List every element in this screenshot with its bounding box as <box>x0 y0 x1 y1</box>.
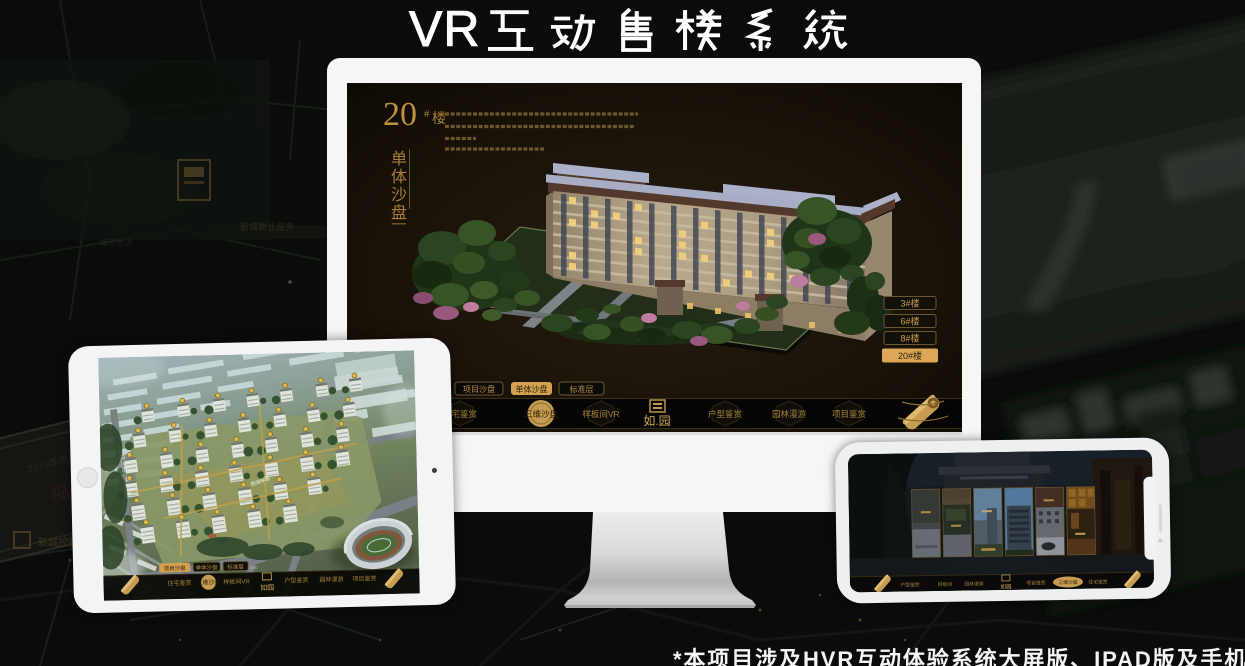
svg-text:沙: 沙 <box>391 187 407 204</box>
svg-text:20#楼: 20#楼 <box>898 350 922 361</box>
svg-text:体: 体 <box>391 168 407 186</box>
svg-text:3#楼: 3#楼 <box>900 298 919 309</box>
svg-text:新城物业服务: 新城物业服务 <box>240 221 294 232</box>
svg-text:楼: 楼 <box>432 110 446 126</box>
svg-text:单: 单 <box>391 150 407 168</box>
svg-text:标准层: 标准层 <box>570 384 594 394</box>
svg-text:户型鉴赏: 户型鉴赏 <box>708 409 742 419</box>
svg-text:如园: 如园 <box>260 583 274 592</box>
svg-text:VR: VR <box>409 5 480 55</box>
svg-text:6#楼: 6#楼 <box>900 316 919 327</box>
svg-text:三维沙盘: 三维沙盘 <box>524 409 559 419</box>
svg-text:盘: 盘 <box>391 203 407 222</box>
svg-text:项目鉴赏: 项目鉴赏 <box>832 409 866 419</box>
svg-text:#: # <box>424 108 430 120</box>
svg-text:如.园: 如.园 <box>643 413 670 428</box>
svg-text:项目沙盘: 项目沙盘 <box>463 384 495 394</box>
svg-text:20: 20 <box>383 96 417 133</box>
svg-text:园林漫游: 园林漫游 <box>772 409 807 419</box>
svg-text:1600: 1600 <box>249 565 259 570</box>
svg-text:8#楼: 8#楼 <box>900 333 919 344</box>
svg-text:单体沙盘: 单体沙盘 <box>516 384 548 394</box>
svg-text:城市生活: 城市生活 <box>100 237 132 247</box>
svg-text:样板间VR: 样板间VR <box>582 409 619 419</box>
svg-text:如园: 如园 <box>1000 582 1012 590</box>
